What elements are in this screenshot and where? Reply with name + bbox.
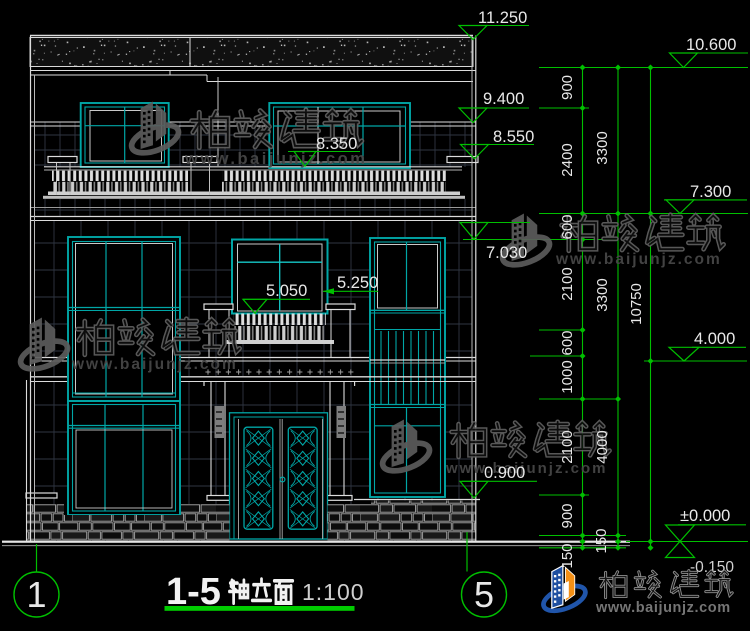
svg-text:2100: 2100 [559, 430, 576, 463]
svg-text:3300: 3300 [594, 131, 611, 164]
svg-text:1:100: 1:100 [302, 579, 365, 605]
svg-text:10.600: 10.600 [686, 36, 736, 54]
svg-text:3300: 3300 [594, 278, 611, 311]
svg-text:www.baijunjz.com: www.baijunjz.com [445, 460, 607, 477]
svg-text:150: 150 [559, 543, 576, 568]
svg-text:600: 600 [559, 214, 576, 239]
svg-text:7.030: 7.030 [486, 244, 527, 262]
svg-text:900: 900 [559, 503, 576, 528]
svg-text:8.550: 8.550 [493, 128, 534, 146]
svg-text:9.400: 9.400 [483, 90, 524, 108]
svg-text:2100: 2100 [559, 267, 576, 300]
svg-text:150: 150 [593, 528, 610, 553]
svg-text:5.250: 5.250 [337, 274, 378, 292]
svg-text:4.000: 4.000 [694, 330, 735, 348]
svg-text:±0.000: ±0.000 [680, 507, 730, 525]
svg-text:2400: 2400 [559, 143, 576, 176]
svg-text:8.350: 8.350 [316, 135, 357, 153]
svg-text:10750: 10750 [628, 283, 645, 325]
svg-text:4000: 4000 [594, 430, 611, 463]
svg-text:600: 600 [559, 330, 576, 355]
svg-text:5: 5 [474, 574, 494, 615]
svg-text:0.900: 0.900 [484, 464, 525, 482]
svg-text:5.050: 5.050 [266, 282, 307, 300]
svg-text:1: 1 [26, 574, 46, 615]
svg-text:900: 900 [559, 75, 576, 100]
svg-text:www.baijunjz.com: www.baijunjz.com [555, 251, 722, 268]
svg-text:7.300: 7.300 [690, 183, 731, 201]
svg-text:1000: 1000 [559, 360, 576, 393]
svg-text:11.250: 11.250 [478, 9, 527, 27]
svg-text:www.baijunjz.com: www.baijunjz.com [595, 600, 731, 616]
svg-text:www.baijunjz.com: www.baijunjz.com [71, 356, 238, 373]
